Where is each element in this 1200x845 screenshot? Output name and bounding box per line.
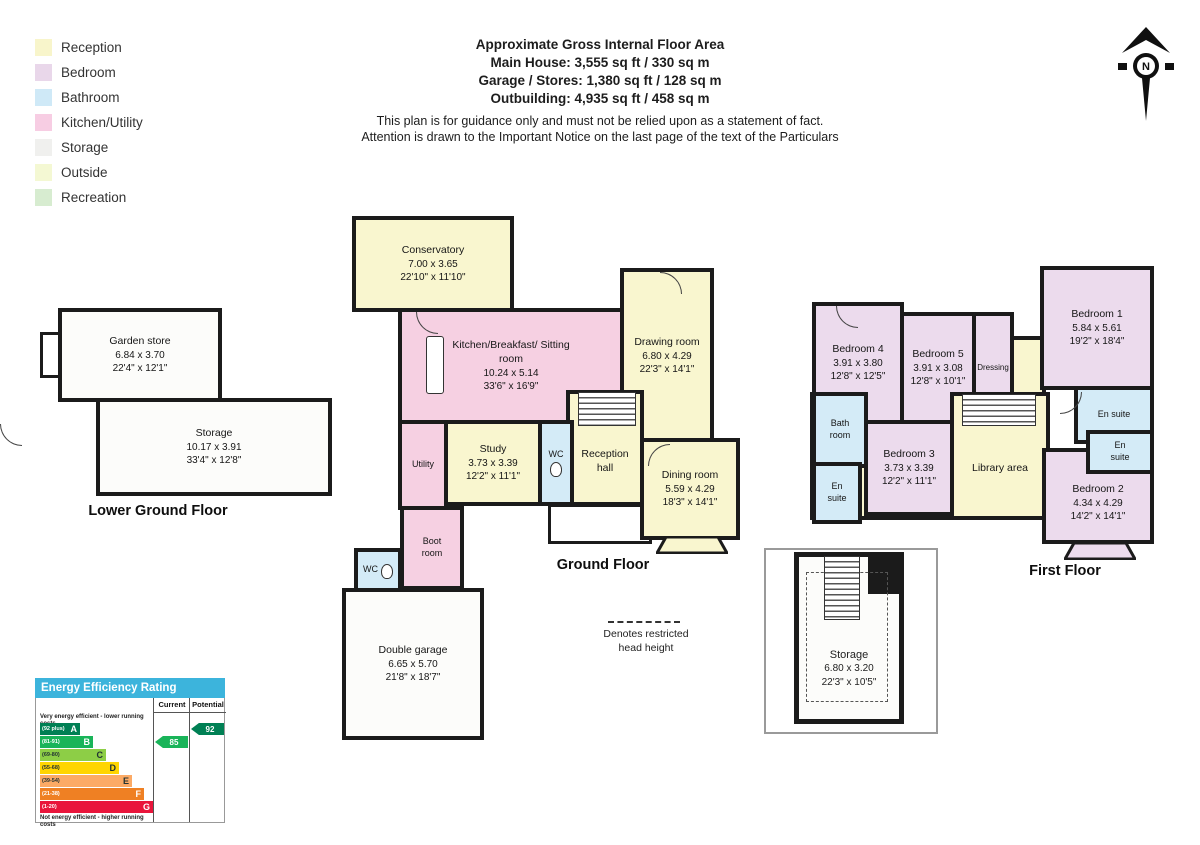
legend-label: Outside bbox=[61, 165, 108, 180]
room-dims-imperial: 22'3" x 10'5" bbox=[784, 676, 914, 690]
room-name: Bedroom 5 bbox=[905, 348, 971, 362]
room-name: Study bbox=[466, 443, 520, 457]
eer-band-f: (21-38) F bbox=[40, 788, 144, 800]
eer-band-g: (1-20) G bbox=[40, 801, 153, 813]
bathroom-swatch-icon bbox=[35, 89, 52, 106]
room-bedroom-3: Bedroom 3 3.73 x 3.39 12'2" x 11'1" bbox=[864, 420, 954, 516]
room-name: Bedroom 3 bbox=[871, 448, 947, 462]
bay-window bbox=[656, 536, 728, 554]
room-name: Dining room bbox=[647, 469, 733, 483]
eer-band-letter: E bbox=[123, 776, 132, 786]
floor-area-summary: Approximate Gross Internal Floor Area Ma… bbox=[300, 36, 900, 145]
floorplan-page: Reception Bedroom Bathroom Kitchen/Utili… bbox=[0, 0, 1200, 845]
room-name: En suite bbox=[1105, 440, 1135, 463]
room-name: WC bbox=[549, 449, 564, 461]
room-label-storage-outbuilding: Storage 6.80 x 3.20 22'3" x 10'5" bbox=[784, 648, 914, 690]
room-dims-imperial: 33'6" x 16'9" bbox=[446, 380, 576, 393]
legend-item-recreation: Recreation bbox=[35, 188, 126, 206]
north-arrow-icon: N bbox=[1118, 26, 1174, 122]
room-en-suite-left: En suite bbox=[812, 462, 862, 524]
staircase bbox=[578, 392, 636, 426]
eer-band-letter: D bbox=[110, 763, 120, 773]
eer-band-range: (39-54) bbox=[40, 778, 60, 784]
room-name: Storage bbox=[784, 648, 914, 662]
room-dims-imperial: 18'3" x 14'1" bbox=[647, 496, 733, 509]
room-dims-metric: 3.91 x 3.80 bbox=[819, 357, 897, 370]
legend-label: Reception bbox=[61, 40, 122, 55]
room-name: Bedroom 1 bbox=[1070, 308, 1125, 322]
room-dims-imperial: 22'4" x 12'1" bbox=[109, 362, 170, 375]
room-dims-imperial: 12'8" x 10'1" bbox=[905, 375, 971, 388]
room-study: Study 3.73 x 3.39 12'2" x 11'1" bbox=[444, 420, 542, 506]
disclaimer-line-2: Attention is drawn to the Important Noti… bbox=[300, 129, 900, 145]
dashed-line-key bbox=[608, 621, 680, 623]
legend-item-kitchen-utility: Kitchen/Utility bbox=[35, 113, 143, 131]
eer-band-b: (81-91) B bbox=[40, 736, 93, 748]
legend-label: Bedroom bbox=[61, 65, 116, 80]
legend-item-bathroom: Bathroom bbox=[35, 88, 120, 106]
eer-band-d: (55-68) D bbox=[40, 762, 119, 774]
room-dims-imperial: 12'2" x 11'1" bbox=[466, 470, 520, 483]
entrance-porch bbox=[548, 504, 652, 544]
room-name: En suite bbox=[1097, 409, 1131, 421]
eer-current-header: Current bbox=[154, 700, 190, 709]
eer-band-range: (81-91) bbox=[40, 739, 60, 745]
eer-band-range: (55-68) bbox=[40, 765, 60, 771]
eer-band-range: (92 plus) bbox=[40, 726, 65, 732]
bay-window bbox=[1064, 542, 1136, 560]
room-dims-metric: 6.80 x 3.20 bbox=[784, 662, 914, 676]
staircase bbox=[962, 394, 1036, 426]
room-dims-metric: 7.00 x 3.65 bbox=[400, 258, 465, 271]
room-name: En suite bbox=[822, 481, 852, 504]
eer-band-range: (69-80) bbox=[40, 752, 60, 758]
room-name: Double garage bbox=[379, 644, 448, 658]
disclaimer-line-1: This plan is for guidance only and must … bbox=[300, 113, 900, 129]
eer-band-letter: A bbox=[71, 724, 81, 734]
room-name: Conservatory bbox=[400, 244, 465, 258]
eer-potential-arrow: 92 bbox=[191, 723, 224, 735]
staircase bbox=[824, 556, 860, 620]
room-dims-metric: 5.84 x 5.61 bbox=[1070, 322, 1125, 335]
outbuilding-area: Outbuilding: 4,935 sq ft / 458 sq m bbox=[300, 90, 900, 108]
room-double-garage: Double garage 6.65 x 5.70 21'8" x 18'7" bbox=[342, 588, 484, 740]
eer-band-e: (39-54) E bbox=[40, 775, 132, 787]
eer-bottom-caption: Not energy efficient - higher running co… bbox=[40, 815, 154, 829]
legend-item-bedroom: Bedroom bbox=[35, 63, 116, 81]
legend-label: Recreation bbox=[61, 190, 126, 205]
room-dims-metric: 3.73 x 3.39 bbox=[871, 462, 947, 475]
summary-title: Approximate Gross Internal Floor Area bbox=[300, 36, 900, 54]
room-name: WC bbox=[363, 564, 378, 576]
eer-column-divider bbox=[189, 698, 190, 822]
eer-band-letter: C bbox=[97, 750, 107, 760]
room-dims-metric: 3.73 x 3.39 bbox=[466, 457, 520, 470]
legend-item-outside: Outside bbox=[35, 163, 108, 181]
toilet-icon bbox=[381, 564, 393, 579]
note-line-1: Denotes restricted bbox=[572, 627, 720, 641]
ground-floor-label: Ground Floor bbox=[523, 557, 683, 573]
eer-current-arrow: 85 bbox=[155, 736, 188, 748]
room-name: Bath room bbox=[822, 418, 858, 441]
room-dims-metric: 5.59 x 4.29 bbox=[647, 483, 733, 496]
room-garden-store: Garden store 6.84 x 3.70 22'4" x 12'1" bbox=[58, 308, 222, 402]
room-dims-metric: 6.80 x 4.29 bbox=[627, 350, 707, 363]
room-name: Garden store bbox=[109, 335, 170, 349]
room-dims-imperial: 19'2" x 18'4" bbox=[1070, 335, 1125, 348]
room-name: Kitchen/Breakfast/ Sitting room bbox=[446, 339, 576, 366]
bedroom-swatch-icon bbox=[35, 64, 52, 81]
eer-band-a: (92 plus) A bbox=[40, 723, 80, 735]
room-name: Bedroom 2 bbox=[1053, 483, 1143, 497]
room-name: Dressing bbox=[977, 363, 1009, 373]
eer-band-letter: B bbox=[84, 737, 94, 747]
room-conservatory: Conservatory 7.00 x 3.65 22'10" x 11'10" bbox=[352, 216, 514, 312]
garage-stores-area: Garage / Stores: 1,380 sq ft / 128 sq m bbox=[300, 72, 900, 90]
lower-ground-floor-label: Lower Ground Floor bbox=[48, 503, 268, 519]
eer-band-letter: F bbox=[136, 789, 145, 799]
room-dims-metric: 3.91 x 3.08 bbox=[905, 362, 971, 375]
energy-efficiency-rating-chart: Energy Efficiency Rating Current Potenti… bbox=[35, 678, 225, 823]
room-dims-imperial: 14'2" x 14'1" bbox=[1053, 510, 1143, 523]
room-bedroom-1: Bedroom 1 5.84 x 5.61 19'2" x 18'4" bbox=[1040, 266, 1154, 390]
eer-title: Energy Efficiency Rating bbox=[35, 678, 225, 698]
note-line-2: head height bbox=[572, 641, 720, 655]
kitchen-island bbox=[426, 336, 444, 394]
room-storage-lower: Storage 10.17 x 3.91 33'4" x 12'8" bbox=[96, 398, 332, 496]
room-dims-metric: 6.84 x 3.70 bbox=[109, 349, 170, 362]
kitchen-swatch-icon bbox=[35, 114, 52, 131]
room-dims-metric: 4.34 x 4.29 bbox=[1053, 497, 1143, 510]
room-dims-imperial: 12'2" x 11'1" bbox=[871, 475, 947, 488]
room-dims-metric: 10.17 x 3.91 bbox=[186, 441, 241, 454]
legend-label: Storage bbox=[61, 140, 108, 155]
room-dims-metric: 10.24 x 5.14 bbox=[446, 367, 576, 380]
toilet-icon bbox=[550, 462, 562, 477]
restricted-head-height-note: Denotes restricted head height bbox=[572, 627, 720, 655]
room-name: Bedroom 4 bbox=[819, 343, 897, 357]
eer-header-divider bbox=[153, 712, 226, 713]
legend-label: Bathroom bbox=[61, 90, 120, 105]
svg-text:N: N bbox=[1142, 61, 1150, 73]
eer-potential-header: Potential bbox=[190, 700, 226, 709]
room-wc-ground: WC bbox=[538, 420, 574, 506]
room-name: Library area bbox=[970, 462, 1030, 476]
room-utility: Utility bbox=[398, 420, 448, 510]
recreation-swatch-icon bbox=[35, 189, 52, 206]
eer-band-c: (69-80) C bbox=[40, 749, 106, 761]
door-arc bbox=[0, 424, 22, 446]
eer-band-range: (21-38) bbox=[40, 791, 60, 797]
room-bath-room: Bath room bbox=[812, 392, 868, 468]
outside-swatch-icon bbox=[35, 164, 52, 181]
room-dims-imperial: 33'4" x 12'8" bbox=[186, 454, 241, 467]
main-house-area: Main House: 3,555 sq ft / 330 sq m bbox=[300, 54, 900, 72]
legend-item-reception: Reception bbox=[35, 38, 122, 56]
first-floor-label: First Floor bbox=[990, 563, 1140, 579]
room-dims-imperial: 12'8" x 12'5" bbox=[819, 370, 897, 383]
room-name: Boot room bbox=[412, 536, 452, 559]
room-name: Storage bbox=[186, 427, 241, 441]
room-dims-imperial: 22'3" x 14'1" bbox=[627, 363, 707, 376]
room-en-suite-right: En suite bbox=[1086, 430, 1154, 474]
room-name: Drawing room bbox=[627, 336, 707, 350]
eer-body: Current Potential Very energy efficient … bbox=[35, 698, 225, 823]
room-dims-imperial: 21'8" x 18'7" bbox=[379, 671, 448, 684]
legend-label: Kitchen/Utility bbox=[61, 115, 143, 130]
room-boot-room: Boot room bbox=[400, 506, 464, 590]
legend-item-storage: Storage bbox=[35, 138, 108, 156]
reception-swatch-icon bbox=[35, 39, 52, 56]
room-name: Reception hall bbox=[573, 448, 637, 475]
room-name: Utility bbox=[412, 459, 434, 471]
eer-band-range: (1-20) bbox=[40, 804, 57, 810]
eer-band-letter: G bbox=[143, 802, 153, 812]
room-dims-imperial: 22'10" x 11'10" bbox=[400, 271, 465, 284]
room-wc-boot: WC bbox=[354, 548, 402, 592]
room-dims-metric: 6.65 x 5.70 bbox=[379, 658, 448, 671]
storage-swatch-icon bbox=[35, 139, 52, 156]
